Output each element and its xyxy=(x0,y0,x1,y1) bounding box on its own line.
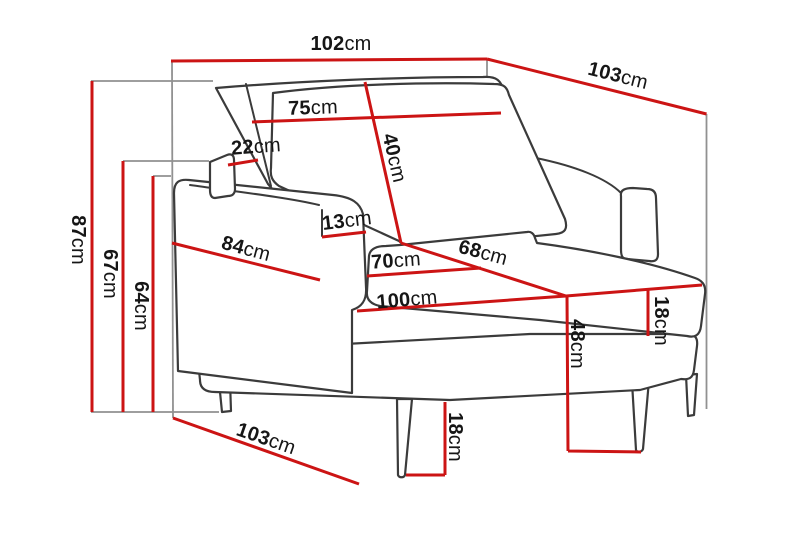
dim-unit: cm xyxy=(253,134,282,158)
dim-value: 87 xyxy=(67,215,89,238)
dim-value: 48 xyxy=(566,319,588,342)
dim-line-overall-width-102 xyxy=(171,59,487,61)
armchair-dimension-diagram: 102cm 103cm 87cm 67cm 64cm 75cm 22cm 40c… xyxy=(0,0,800,533)
dim-unit: cm xyxy=(566,342,588,369)
right-armrest xyxy=(621,188,658,261)
dim-label-seat-height: 48cm xyxy=(567,319,587,369)
dim-label-overall-height: 87cm xyxy=(68,215,88,265)
dim-label-armrest-height: 64cm xyxy=(131,281,151,331)
dim-unit: cm xyxy=(393,248,422,272)
leg-rear-right xyxy=(686,374,697,416)
dim-unit: cm xyxy=(444,435,466,462)
dim-label-backrest-depth: 22cm xyxy=(231,135,282,158)
dim-label-back-frame-height: 67cm xyxy=(100,249,120,299)
dim-unit: cm xyxy=(130,304,152,331)
dim-unit: cm xyxy=(310,96,338,119)
dim-label-seat-front-width: 100cm xyxy=(376,287,439,312)
dim-label-seat-width: 70cm xyxy=(371,249,422,272)
dim-value: 13 xyxy=(321,210,346,235)
dim-value: 67 xyxy=(99,249,121,272)
dim-value: 18 xyxy=(650,296,672,319)
dim-line-leg-height-18 xyxy=(406,402,445,475)
dim-unit: cm xyxy=(99,272,121,299)
dim-unit: cm xyxy=(343,207,373,232)
dim-value: 102 xyxy=(310,33,344,55)
extension-left-vertical xyxy=(172,61,173,418)
dim-value: 64 xyxy=(130,281,152,304)
dim-label-cushion-thickness: 18cm xyxy=(651,296,671,346)
dim-label-backrest-width: 75cm xyxy=(288,97,338,119)
dim-label-leg-height: 18cm xyxy=(445,412,465,462)
dim-value: 18 xyxy=(444,412,466,435)
back-frame-piece xyxy=(210,154,235,198)
dim-unit: cm xyxy=(344,33,371,55)
leg-front-left xyxy=(397,399,412,477)
dim-value: 70 xyxy=(370,250,394,274)
dim-value: 75 xyxy=(288,97,311,120)
dim-unit: cm xyxy=(409,286,438,310)
dim-unit: cm xyxy=(67,238,89,265)
dim-value: 22 xyxy=(230,136,254,160)
dim-value: 100 xyxy=(376,289,412,314)
dim-unit: cm xyxy=(650,319,672,346)
dim-label-overall-width: 102cm xyxy=(310,34,371,54)
